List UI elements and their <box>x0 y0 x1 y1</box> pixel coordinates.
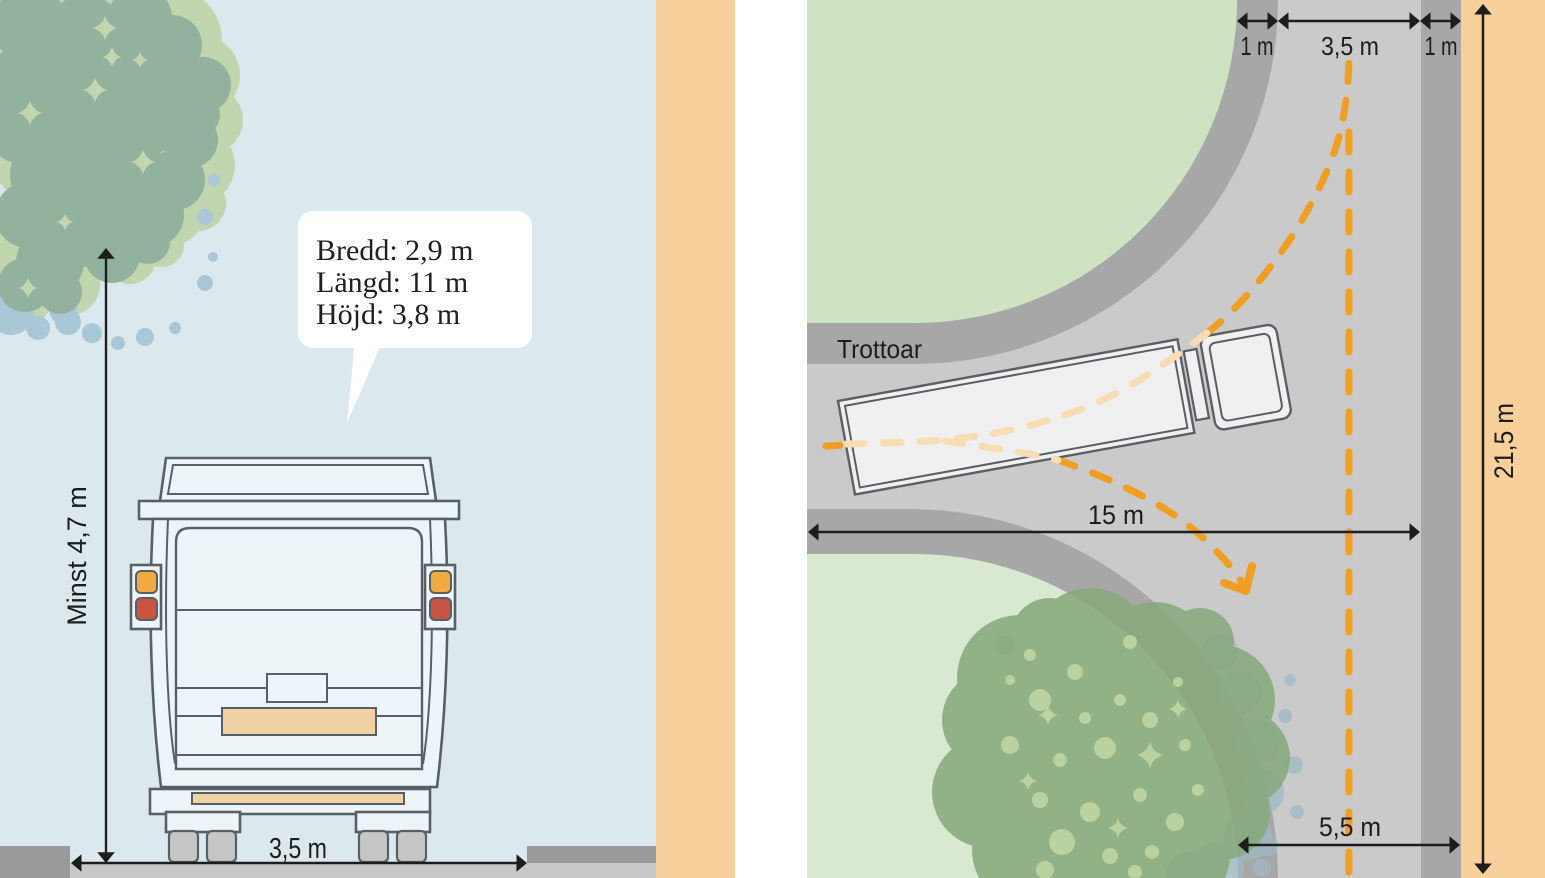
svg-text:3,5 m: 3,5 m <box>1321 31 1379 61</box>
svg-text:Bredd: 2,9 m: Bredd: 2,9 m <box>316 234 474 267</box>
svg-text:Minst 4,7 m: Minst 4,7 m <box>62 486 92 626</box>
svg-text:15 m: 15 m <box>1088 500 1144 530</box>
svg-text:Längd: 11 m: Längd: 11 m <box>316 266 468 299</box>
svg-text:Trottoar: Trottoar <box>837 334 922 364</box>
svg-text:21,5 m: 21,5 m <box>1489 403 1519 479</box>
svg-text:1 m: 1 m <box>1241 31 1274 61</box>
svg-text:Höjd: 3,8 m: Höjd: 3,8 m <box>316 298 460 331</box>
svg-text:5,5 m: 5,5 m <box>1319 812 1381 842</box>
svg-text:1 m: 1 m <box>1425 31 1458 61</box>
svg-text:3,5 m: 3,5 m <box>269 833 327 865</box>
